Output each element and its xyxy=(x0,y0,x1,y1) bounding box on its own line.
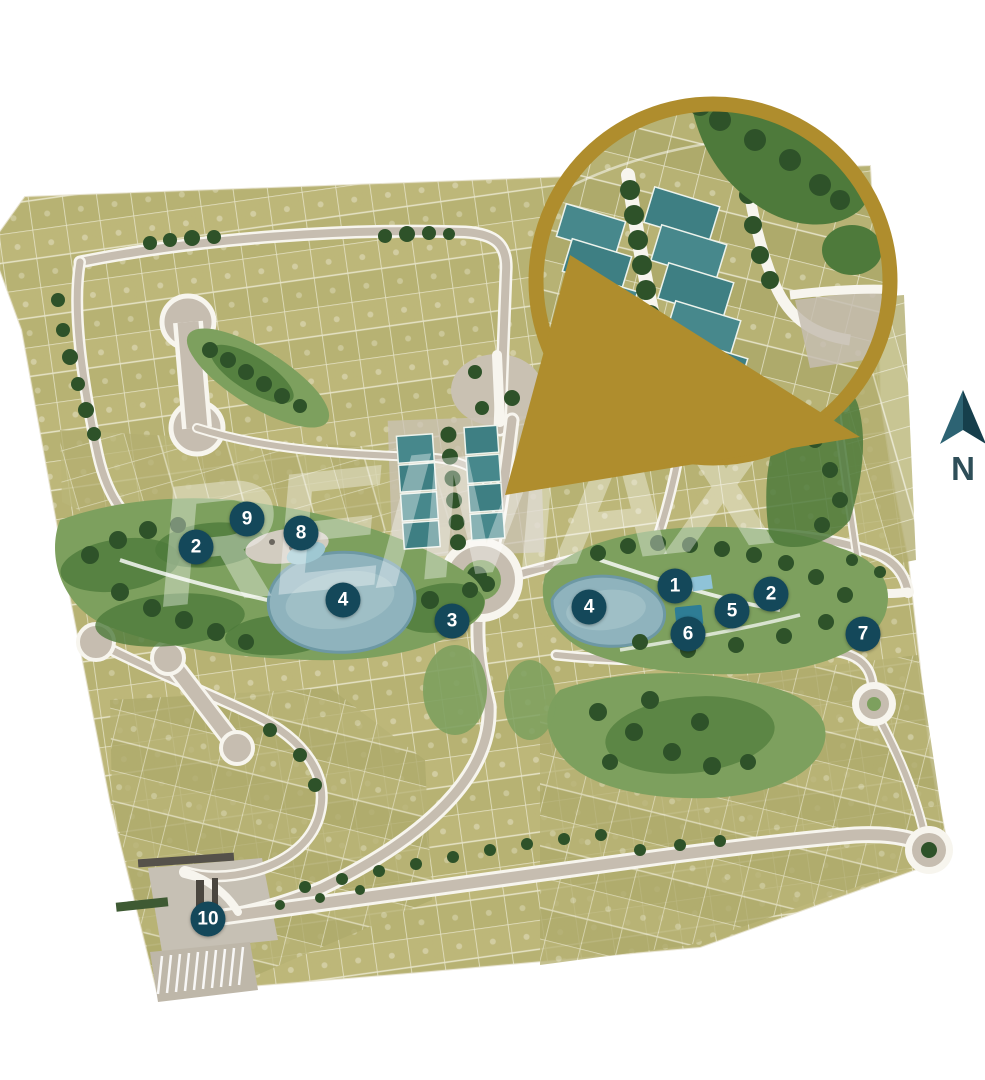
master-plan-map xyxy=(0,0,985,1080)
map-marker-8[interactable]: 8 xyxy=(284,516,319,551)
site-plan-screenshot: RE/MAX® xyxy=(0,0,985,1080)
north-indicator: N xyxy=(928,386,985,488)
map-marker-10-entrance[interactable]: 10 xyxy=(191,902,226,937)
map-marker-4-west-lake[interactable]: 4 xyxy=(326,583,361,618)
amenity-structures xyxy=(691,575,713,592)
map-marker-5[interactable]: 5 xyxy=(715,594,750,629)
map-marker-9[interactable]: 9 xyxy=(230,502,265,537)
map-marker-4-east-lake[interactable]: 4 xyxy=(572,590,607,625)
map-marker-2-east-park[interactable]: 2 xyxy=(754,577,789,612)
north-label: N xyxy=(928,450,985,488)
map-marker-3[interactable]: 3 xyxy=(435,604,470,639)
map-marker-7[interactable]: 7 xyxy=(846,617,881,652)
map-marker-2-west-park[interactable]: 2 xyxy=(179,530,214,565)
north-arrow-icon xyxy=(928,386,985,448)
map-marker-6[interactable]: 6 xyxy=(671,617,706,652)
map-marker-1[interactable]: 1 xyxy=(658,569,693,604)
